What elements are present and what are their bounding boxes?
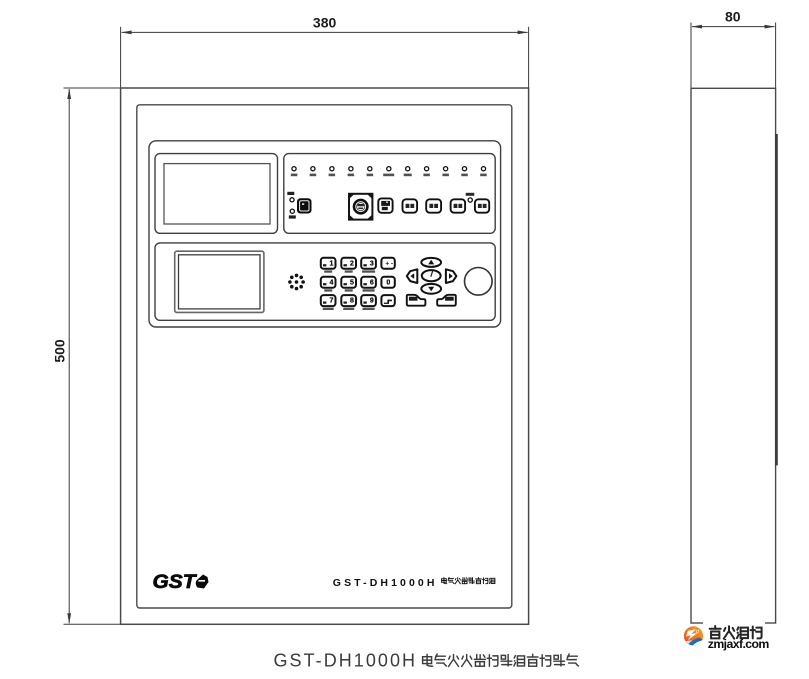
svg-text:2: 2 — [350, 260, 354, 267]
svg-text:GST: GST — [153, 571, 198, 593]
svg-text:500: 500 — [52, 339, 68, 363]
svg-text:8: 8 — [350, 298, 354, 305]
svg-text:5: 5 — [350, 279, 354, 286]
svg-text:4: 4 — [330, 279, 334, 286]
svg-text:+ -: + - — [385, 261, 393, 268]
svg-text:zmjaxf.com: zmjaxf.com — [708, 637, 770, 651]
svg-text:3: 3 — [370, 260, 374, 267]
svg-text:1: 1 — [330, 260, 334, 267]
svg-text:GST-DH1000H: GST-DH1000H — [274, 651, 418, 671]
svg-text:0: 0 — [386, 280, 390, 287]
svg-text:380: 380 — [313, 15, 337, 31]
svg-text:GST-DH1000H: GST-DH1000H — [333, 577, 438, 589]
svg-text:6: 6 — [370, 279, 374, 286]
svg-text:9: 9 — [370, 298, 374, 305]
svg-text:7: 7 — [330, 298, 334, 305]
svg-text:80: 80 — [725, 9, 741, 25]
